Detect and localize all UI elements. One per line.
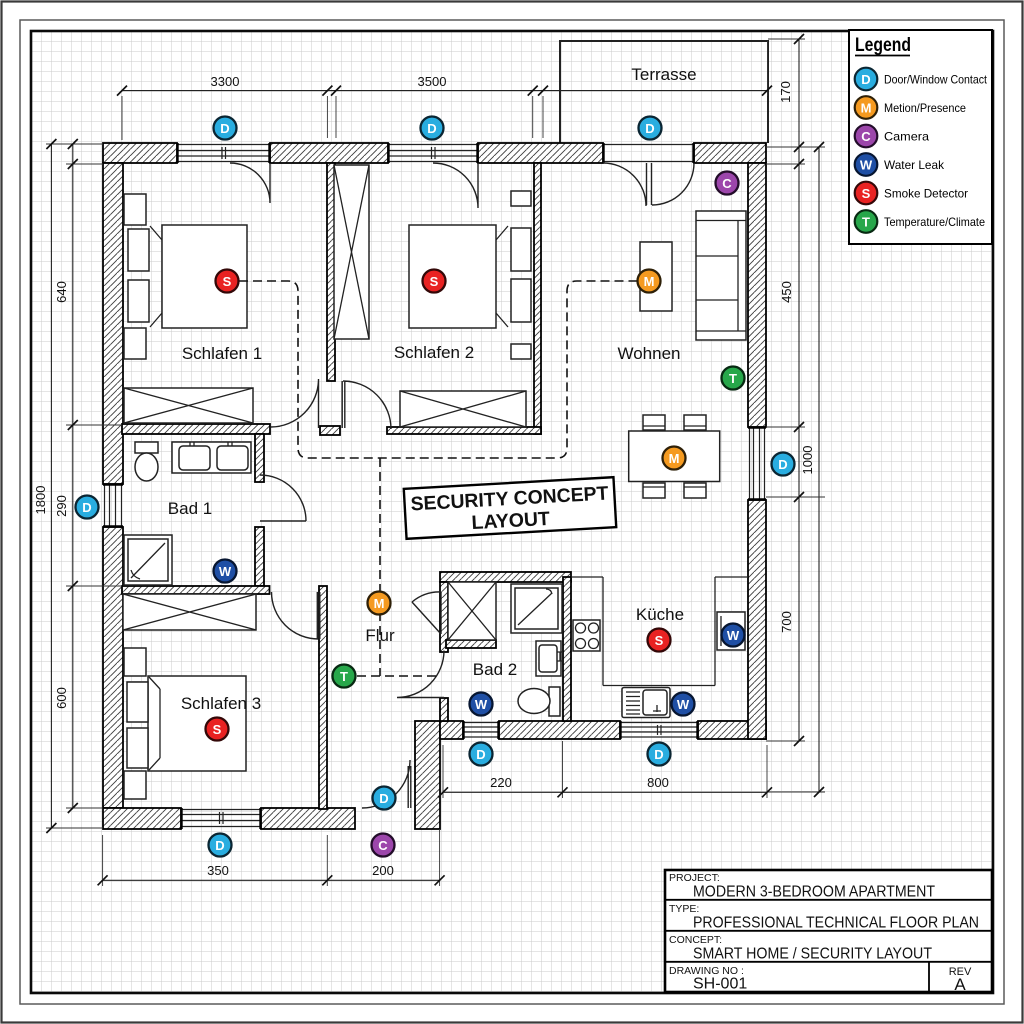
svg-text:Flur: Flur [365,626,395,645]
svg-text:C: C [861,129,871,144]
svg-text:D: D [82,500,91,515]
svg-text:Door/Window Contact: Door/Window Contact [884,73,988,87]
svg-text:TYPE:: TYPE: [669,903,699,915]
svg-text:Temperature/Climate: Temperature/Climate [884,215,985,229]
svg-text:Metion/Presence: Metion/Presence [884,101,966,115]
svg-text:D: D [220,121,229,136]
svg-text:M: M [374,596,385,611]
svg-text:700: 700 [779,611,794,633]
svg-text:SMART HOME / SECURITY LAYOUT: SMART HOME / SECURITY LAYOUT [693,946,932,963]
svg-text:170: 170 [778,81,793,103]
svg-text:1800: 1800 [33,486,48,515]
svg-text:W: W [219,564,232,579]
svg-text:W: W [475,697,488,712]
svg-text:Smoke Detector: Smoke Detector [884,187,968,201]
svg-text:C: C [378,838,388,853]
svg-text:640: 640 [54,281,69,303]
svg-text:D: D [215,838,224,853]
svg-text:D: D [645,121,654,136]
svg-text:Bad 2: Bad 2 [473,660,517,679]
svg-text:T: T [340,669,348,684]
svg-text:Bad 1: Bad 1 [168,499,212,518]
svg-text:D: D [379,791,388,806]
svg-text:M: M [861,101,872,116]
svg-text:D: D [476,747,485,762]
svg-text:Terrasse: Terrasse [631,65,696,84]
svg-text:1000: 1000 [800,446,815,475]
svg-text:Legend: Legend [855,35,911,56]
svg-text:D: D [778,457,787,472]
svg-text:S: S [862,186,871,201]
svg-text:Schlafen 1: Schlafen 1 [182,344,262,363]
svg-text:C: C [722,176,732,191]
svg-text:T: T [729,371,737,386]
svg-text:D: D [427,121,436,136]
svg-text:220: 220 [490,775,512,790]
svg-text:D: D [654,747,663,762]
svg-text:200: 200 [372,863,394,878]
svg-text:Wohnen: Wohnen [617,344,680,363]
svg-text:Water Leak: Water Leak [884,158,945,172]
svg-text:Schlafen 3: Schlafen 3 [181,694,261,713]
svg-text:3300: 3300 [211,74,240,89]
svg-text:W: W [727,628,740,643]
svg-text:S: S [430,274,439,289]
svg-text:3500: 3500 [418,74,447,89]
svg-text:800: 800 [647,775,669,790]
svg-text:A: A [954,975,966,994]
svg-text:450: 450 [779,281,794,303]
svg-text:290: 290 [54,495,69,517]
svg-text:Küche: Küche [636,605,684,624]
svg-text:S: S [655,633,664,648]
svg-text:350: 350 [207,863,229,878]
svg-text:MODERN 3-BEDROOM APARTMENT: MODERN 3-BEDROOM APARTMENT [693,884,935,901]
svg-text:Schlafen 2: Schlafen 2 [394,343,474,362]
svg-text:W: W [860,158,873,173]
svg-text:Camera: Camera [884,130,929,144]
svg-text:W: W [677,697,690,712]
svg-text:T: T [862,215,870,230]
svg-text:PROJECT:: PROJECT: [669,872,720,884]
svg-text:S: S [223,274,232,289]
svg-text:CONCEPT:: CONCEPT: [669,934,722,946]
svg-text:SH-001: SH-001 [693,976,747,993]
svg-text:M: M [669,451,680,466]
svg-text:S: S [213,722,222,737]
svg-text:PROFESSIONAL TECHNICAL FLOOR P: PROFESSIONAL TECHNICAL FLOOR PLAN [693,915,979,932]
svg-text:600: 600 [54,687,69,709]
svg-text:LAYOUT: LAYOUT [471,508,551,534]
svg-text:D: D [861,72,870,87]
svg-text:M: M [644,274,655,289]
